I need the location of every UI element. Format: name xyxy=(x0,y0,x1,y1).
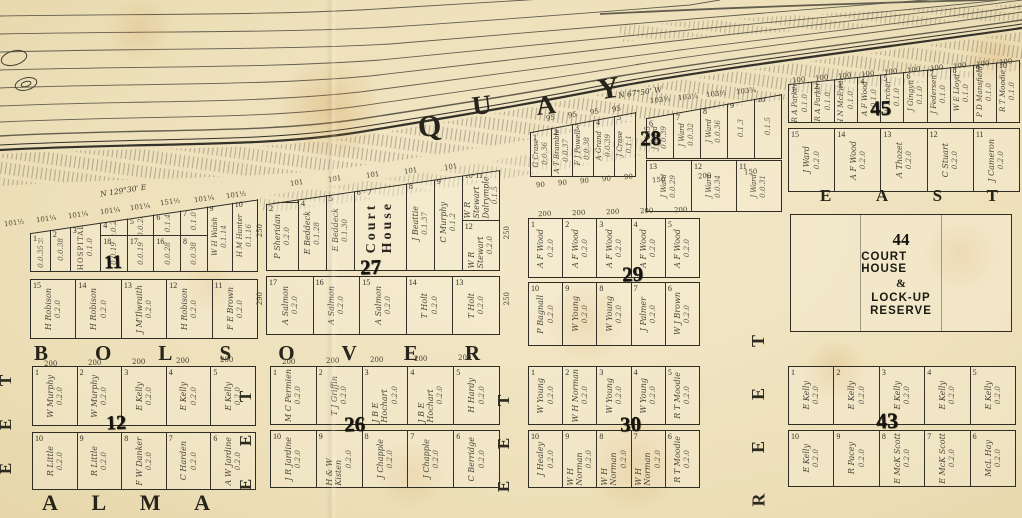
lot: 10·11W R Stewart Dalrymple0.1.512W R Ste… xyxy=(462,170,499,270)
lot-owner: P Sheridan xyxy=(273,214,282,259)
lot-owner: A F Wood xyxy=(673,229,682,268)
lot: 6McL Hay0.2.0 xyxy=(970,431,1015,486)
street-letter: E xyxy=(237,479,254,490)
lot: 6C Berridge0.2.0 xyxy=(453,431,499,487)
lot-owner: E Kelly xyxy=(893,381,902,410)
street-letter: T xyxy=(749,335,767,347)
lot: 2E Kelly0.2.0 xyxy=(833,367,878,424)
lot-area: 0.1.28 xyxy=(313,222,321,245)
lot-area: 0.0.39 xyxy=(660,126,668,149)
lot-owner: F J Powell xyxy=(574,130,582,165)
block-number: 27 xyxy=(360,255,382,281)
lot-number: 6 xyxy=(668,432,672,441)
lot-area: 0.2.0 xyxy=(100,452,108,470)
lot-owner: M C Permien xyxy=(284,369,293,422)
lot-number: 8 xyxy=(599,432,603,441)
lot-number: 13 xyxy=(124,281,132,290)
lot-area: 0.2.0 xyxy=(997,151,1005,169)
lot-area: 0.1.0 xyxy=(962,84,970,102)
street-label-vertical: TEE xyxy=(0,372,11,477)
lot-area: 0.2.0 xyxy=(384,296,392,314)
lot-owner: J Crase xyxy=(616,131,624,157)
lot-area: 0.1.0 xyxy=(916,86,924,104)
street-letter: T xyxy=(987,186,998,206)
lot-number: 4 xyxy=(103,221,107,230)
lot-number: 3 xyxy=(365,368,369,377)
lot: 14T Holt0.2.0 xyxy=(406,277,453,334)
lot-area: 0.2.0 xyxy=(615,386,623,404)
lot-owner: J Ward xyxy=(705,119,713,143)
dimension-label: 150 xyxy=(744,168,758,177)
lot-owner: A F Wood xyxy=(861,81,869,116)
street-letter: E xyxy=(749,388,767,400)
lot-owner: E Kelly xyxy=(224,382,233,411)
lot: 10J R Jardine0.2.0 xyxy=(271,431,316,487)
lot-number: 14 xyxy=(409,278,417,287)
street-letter: T xyxy=(237,391,254,402)
lot-area: 0.2.0 xyxy=(812,449,820,467)
lot-number: 11 xyxy=(215,281,223,290)
lot-owner: A F Wood xyxy=(571,229,580,268)
lot-area: 0.2.0 xyxy=(581,239,589,257)
lot-owner: C Stuart xyxy=(941,143,950,177)
lot-row: 13J Ward0.0.2912J Ward0.0.3411J Ward0.0.… xyxy=(646,160,782,212)
lot: 9R Pacey0.2.0 xyxy=(833,431,878,486)
block-number: 26 xyxy=(344,412,366,438)
lot-row: 10R Little0.2.09R Little0.2.08F W Danker… xyxy=(32,432,256,490)
lot: 12H Robison0.2.0 xyxy=(166,280,211,338)
lot-number: 1 xyxy=(791,368,795,377)
lot-area: 0.2.0 xyxy=(858,386,866,404)
lot-row: 1M C Permien0.2.02T J Griffin0.2.03J B E… xyxy=(270,366,500,425)
lot-owner: A Salmon xyxy=(374,286,383,325)
lot-area: 0.2.0 xyxy=(948,449,956,467)
lot-area: 0.1.0 xyxy=(190,212,198,230)
block-44-court-house-reserve: 44 COURT HOUSE & LOCK-UP RESERVE xyxy=(790,214,1012,332)
dimension-label: 95 xyxy=(589,107,599,116)
lot-area: 0.2.0 xyxy=(547,450,555,468)
lot: 11F E Brown0.2.0 xyxy=(212,280,257,338)
lot-owner: E Kelly xyxy=(847,381,856,410)
lot-number: 6 xyxy=(156,213,160,222)
lot-area: 0.2.0 xyxy=(478,386,486,404)
lot-area: 0.0.37 xyxy=(562,139,570,162)
lot-owner: E Kelly xyxy=(984,381,993,410)
lot-area: 0.1.1 xyxy=(625,135,633,153)
dimension-label: 200 xyxy=(176,357,189,365)
lot-number: 17 xyxy=(130,237,138,246)
reserve-side-panel xyxy=(791,215,860,331)
lot-area: 0.2.0 xyxy=(903,449,911,467)
dimension-label: 200 xyxy=(326,357,339,365)
dimension-label: 90 xyxy=(624,173,633,182)
lot-owner: R Little xyxy=(46,446,55,476)
lot-area: 0.1.5 xyxy=(491,186,499,204)
lot-area: 0.2.0 xyxy=(547,305,555,323)
lot-number: 11 xyxy=(976,130,984,139)
lot-number: 10 xyxy=(791,432,799,441)
lot-area: 0.2.0 xyxy=(547,386,555,404)
dimension-label: 200 xyxy=(132,358,145,366)
lot: 5J Crase0.1.1 xyxy=(614,112,635,176)
lot-number: 5 xyxy=(213,368,217,377)
dimension-label: 100 xyxy=(953,61,967,70)
lot-owner: E Kelly xyxy=(802,381,811,410)
lot-area: 0.0.38 xyxy=(57,238,65,261)
lot-row: 1W Young0.2.02W H Norman0.2.03W Young0.2… xyxy=(528,366,700,425)
lot-area: 0.1.0 xyxy=(939,85,947,103)
lot-owner: W E Lloyd xyxy=(953,74,961,111)
lot: 9W Young0.2.0 xyxy=(562,283,596,345)
lot: 1W Murphy0.2.0 xyxy=(33,367,77,425)
lot: 7E McK Scott0.2.0 xyxy=(924,431,969,486)
lot-owner: W Young xyxy=(605,378,614,414)
lot-number: 4 xyxy=(410,368,414,377)
lot-area: 0.2.0 xyxy=(581,305,589,323)
reserve-line: & xyxy=(896,276,906,291)
lot-area: 0.2.0 xyxy=(683,386,691,404)
lot-number: 10 xyxy=(273,432,281,441)
street-letter: T xyxy=(495,395,512,406)
lot-area: 0.2.0 xyxy=(812,386,820,404)
lot-area: 0.2.0 xyxy=(431,296,439,314)
lot-area: 0.2.0 xyxy=(994,386,1002,404)
lot-area: 0.2.0 xyxy=(190,300,198,318)
lot-number: 8 xyxy=(703,107,707,116)
lot: 90.1.3 xyxy=(727,94,754,158)
lot: 6W J Brown0.2.0 xyxy=(665,283,699,345)
lot-area: 0.2.0 xyxy=(478,450,486,468)
lot-area: 0.1.0 xyxy=(86,238,94,256)
lot-area: 0.1.3 xyxy=(737,119,745,137)
lot: 9W H Norman0.2.0 xyxy=(562,431,596,487)
lot-number: 14 xyxy=(78,281,86,290)
lot: 7J Palmer0.2.0 xyxy=(631,283,665,345)
lot-area: 0.2.0 xyxy=(294,386,302,404)
lot: 1M C Permien0.2.0 xyxy=(271,367,316,424)
lot-number: 6 xyxy=(213,434,217,443)
lot: 8W Young0.2.0 xyxy=(596,283,630,345)
lot-area: 0.0.34 xyxy=(714,175,722,198)
lot: 12C Stuart0.2.0 xyxy=(927,129,973,191)
lot: 13J Ward0.0.29 xyxy=(647,161,691,211)
dimension-label: 150 xyxy=(652,176,666,185)
lot-row: 15H Robison0.2.014H Robison0.2.013J M'Il… xyxy=(30,279,258,339)
lot-number: 17 xyxy=(269,278,277,287)
dimension-label: 250 xyxy=(503,292,511,305)
lot-area: 0.2.0 xyxy=(145,387,153,405)
lot-area: 0.2.0 xyxy=(649,305,657,323)
street-letter: E xyxy=(495,438,512,449)
lot-area: 0.2.0 xyxy=(994,449,1002,467)
lot: 14A F Wood0.2.0 xyxy=(834,129,880,191)
lot: 2P Sheridan0.2.0 xyxy=(267,202,298,270)
lot-area: 0.2.0 xyxy=(236,300,244,318)
lot-owner: H Robison xyxy=(180,288,189,330)
street-letter: E xyxy=(0,463,14,474)
lot-owner: J R Jardine xyxy=(284,437,293,481)
lot-area: 0.2.0 xyxy=(190,452,198,470)
dimension-label: 100 xyxy=(792,75,806,84)
lot-number: 1 xyxy=(273,368,277,377)
lot: 3E Kelly0.2.0 xyxy=(121,367,166,425)
lot-owner: H Robison xyxy=(44,288,53,330)
street-letter: Q xyxy=(416,109,443,145)
street-letter: L xyxy=(158,341,172,365)
lot-area: 0.2.0 xyxy=(432,450,440,468)
lot-number: 12 xyxy=(930,130,938,139)
lot: 12W R Stewart0.2.0 xyxy=(463,220,499,271)
dimension-label: 165 xyxy=(644,126,652,139)
dimension-label: 200 xyxy=(220,356,233,364)
block-number: 45 xyxy=(870,96,892,122)
lot-number: 6 xyxy=(456,432,460,441)
lot-owner: J Palmer xyxy=(639,297,648,331)
lot-number: 15 xyxy=(791,130,799,139)
lot-area: 0.2.0 xyxy=(477,296,485,314)
lot-owner: W H Norman xyxy=(571,369,580,422)
lot-owner: W Murphy xyxy=(46,375,55,418)
lot: 4J B E Hochart0.2.0 xyxy=(407,367,453,424)
lot-area: 0.2.0 xyxy=(190,387,198,405)
lot-number: 2 xyxy=(554,128,558,137)
lot-area: 0.1.14 xyxy=(220,225,228,248)
lot-owner: W Young xyxy=(571,296,580,332)
lot-owner: A Salmon xyxy=(327,286,336,325)
lot-area: 0.1.0 xyxy=(985,83,993,101)
dimension-label: 200 xyxy=(698,172,712,181)
lot: 6R T Moodie0.2.0 xyxy=(665,431,699,487)
lot-owner: W Young xyxy=(605,296,614,332)
lot-number: 1 xyxy=(33,234,37,243)
dimension-label: 200 xyxy=(282,358,295,366)
lot-number: 5 xyxy=(329,194,333,203)
lot-area: 0.2.0 xyxy=(547,239,555,257)
lot-area: 0.2.0 xyxy=(345,450,353,468)
dimension-label: 200 xyxy=(538,210,552,218)
dimension-label: 95 xyxy=(545,113,555,122)
lot-number: 7 xyxy=(927,432,931,441)
street-letter: E xyxy=(0,419,14,430)
lot-owner: J Cameron xyxy=(987,139,996,182)
lot-number: 1 xyxy=(791,85,795,94)
lot-owner: H & W Kisten xyxy=(325,433,343,486)
street-letter: A xyxy=(42,490,58,516)
lot-owner: HOSPITAL xyxy=(77,224,85,270)
lot-owner: C Berridge xyxy=(467,437,476,481)
lot-area: 0.2.0 xyxy=(486,236,494,254)
lot: 5R T Moodie0.2.0 xyxy=(665,367,699,424)
lot-number: 6 xyxy=(973,432,977,441)
lot-owner: A F Wood xyxy=(536,229,545,268)
lot-owner: W H Walsh xyxy=(211,217,219,256)
lot-area: 0.0.38 xyxy=(190,242,198,265)
lot: 9W H Walsh0.1.14 xyxy=(207,199,232,271)
lot-owner: Court House xyxy=(364,201,396,253)
lot-owner: H Hardy xyxy=(467,378,476,413)
lot-number: 3 xyxy=(73,226,77,235)
lot-area: 0.0.38 xyxy=(583,137,591,160)
lot-number: 5 xyxy=(668,220,672,229)
lot: 8W H Norman0.2.0 xyxy=(596,431,630,487)
lot: 8E McK Scott0.2.0 xyxy=(879,431,924,486)
lot-number: 4 xyxy=(927,368,931,377)
lot: 1A F Wood0.2.0 xyxy=(529,219,562,277)
dimension-label: 290 xyxy=(256,292,264,305)
dimension-label: 95 xyxy=(567,110,577,119)
street-letter: V xyxy=(342,341,357,365)
lot-area: 0.2.0 xyxy=(683,305,691,323)
dimension-label: 200 xyxy=(606,208,620,216)
lot-owner: R T Moodie xyxy=(999,70,1007,112)
lot-area: 0.2.0 xyxy=(100,300,108,318)
lot-owner: W J Brown xyxy=(673,292,682,335)
dimension-label: 200 xyxy=(44,360,57,368)
lot-number: 2 xyxy=(319,368,323,377)
lot-area: 0.2.0 xyxy=(951,151,959,169)
lot-owner: E Beddeck xyxy=(331,208,340,251)
lot-area: 0.2.0 xyxy=(436,386,444,404)
lot-row: 1A F Wood0.2.02A F Wood0.2.03A F Wood0.2… xyxy=(528,218,700,278)
lot: 3J B E Hochart0.2.0 xyxy=(362,367,408,424)
lot-owner: J B E Hochart xyxy=(417,369,435,423)
lot-area: 0.2.0 xyxy=(813,151,821,169)
lot-owner: R Pacey xyxy=(847,442,856,474)
lot-owner: C Harden xyxy=(179,441,188,480)
lot-area: 0.2.0 xyxy=(905,151,913,169)
lot: 2A F Wood0.2.0 xyxy=(562,219,596,277)
lot-area: 0.2.0 xyxy=(283,227,291,245)
lot: 100.1.5 xyxy=(754,94,781,158)
lot: 1W Young0.2.0 xyxy=(529,367,562,424)
lot-owner: J Chapple xyxy=(422,439,431,478)
lot-number: 9 xyxy=(565,432,569,441)
lot-area: 0.2.0 xyxy=(948,386,956,404)
street-letter: L xyxy=(91,490,106,516)
lot-area: 0.1.30 xyxy=(341,219,349,242)
lot-number: 5 xyxy=(668,368,672,377)
lot: 10E Kelly0.2.0 xyxy=(789,431,833,486)
dimension-label: 100 xyxy=(884,67,898,76)
lot-owner: J Chapple xyxy=(376,439,385,478)
lot-number: 1 xyxy=(35,368,39,377)
lot-owner: T J Griffin xyxy=(330,376,339,416)
lot: 4E Kelly0.2.0 xyxy=(166,367,211,425)
lot-number: 2 xyxy=(814,82,818,91)
dimension-label: 100 xyxy=(999,57,1013,66)
lot-owner: E McK Scott xyxy=(938,433,947,484)
lot-area: 0.2.0 xyxy=(858,449,866,467)
lot-area: 0.0.31 xyxy=(759,175,767,198)
lot-area: 0.2.0 xyxy=(585,450,593,468)
lot-area: 0.2.0 xyxy=(145,300,153,318)
lot-owner: McL Hay xyxy=(984,440,993,477)
lot: 15J Ward0.2.0 xyxy=(789,129,834,191)
lot-row: 10J R Jardine0.2.09H & W Kisten0.2.08J C… xyxy=(270,430,500,488)
lot-area: 0.1.0 xyxy=(893,88,901,106)
lot-row: 17A Salmon0.2.016A Salmon0.2.015A Salmon… xyxy=(266,276,500,335)
lot-owner: H Robison xyxy=(89,288,98,330)
lot-number: 2 xyxy=(565,368,569,377)
lot-area: 0.2.0 xyxy=(294,450,302,468)
lot: 10R Little0.2.0 xyxy=(33,433,77,489)
dimension-label: 200 xyxy=(674,206,688,214)
dimension-label: 100 xyxy=(907,65,921,74)
lot-area: 0.0.39 xyxy=(604,134,612,157)
lot: 7J Chapple0.2.0 xyxy=(407,431,453,487)
lot-owner: E Beddeck xyxy=(303,211,312,254)
lot-number: 16 xyxy=(316,278,324,287)
lot-number: 12 xyxy=(465,222,473,231)
lot-owner: P Bagnall xyxy=(536,295,545,334)
lot-area: 0.0.36 xyxy=(714,120,722,143)
block-number: 12 xyxy=(106,412,127,436)
lot-owner: J Federsen xyxy=(930,75,938,114)
lot-owner: G Crase xyxy=(532,139,540,167)
lot-number: 7 xyxy=(169,434,173,443)
lot-owner: J Healey xyxy=(536,442,545,476)
dimension-label: 200 xyxy=(414,355,427,363)
lot-number: 9 xyxy=(565,284,569,293)
reserve-line: COURT HOUSE xyxy=(861,251,941,275)
lot-number: 3 xyxy=(837,80,841,89)
lot: 4A Grand0.0.39 xyxy=(593,112,614,176)
dimension-label: 250 xyxy=(256,224,264,237)
lot-number: 7 xyxy=(410,432,414,441)
lot-number: 1 xyxy=(531,220,535,229)
lot-area: 0.2.0 xyxy=(615,239,623,257)
lot-row: 1E Kelly0.2.02E Kelly0.2.03E Kelly0.2.04… xyxy=(788,366,1016,425)
lot: 5H Hardy0.2.0 xyxy=(453,367,499,424)
lot-owner: J Gingyn xyxy=(907,80,915,111)
reserve-side-panel xyxy=(941,215,1011,331)
lot-row: 15J Ward0.2.014A F Wood0.2.013A Thozet0.… xyxy=(788,128,1020,192)
dimension-label: 100 xyxy=(861,69,875,78)
lot-owner: R T Moodie xyxy=(673,436,682,483)
street-label-vertical: TEE xyxy=(498,392,509,495)
lot: 10H M Hunter0.1.16 xyxy=(232,199,257,271)
block-number: 44 xyxy=(893,230,910,250)
lot: 14H Robison0.2.0 xyxy=(75,280,120,338)
street-letter: A xyxy=(876,186,888,206)
lot-area: 0.1.0 xyxy=(1008,82,1016,100)
lot-number: 2 xyxy=(80,368,84,377)
lot: 13A Thozet0.2.0 xyxy=(880,129,926,191)
lot-area: 0.1.16 xyxy=(245,224,253,247)
lot: 11J Cameron0.2.0 xyxy=(973,129,1019,191)
lot-number: 6 xyxy=(668,284,672,293)
lot: 5E Kelly0.2.0 xyxy=(970,367,1015,424)
block-number: 11 xyxy=(104,252,123,275)
lot-owner: E Kelly xyxy=(179,382,188,411)
lot-area: 0.2.0 xyxy=(391,386,399,404)
lot-area: 0.1.4 xyxy=(164,214,172,232)
lot-number: 8 xyxy=(124,434,128,443)
lot: 10R T Moodie0.1.0 xyxy=(996,60,1019,122)
lot-owner: J B E Hochart xyxy=(371,369,389,423)
lot: 15A Salmon0.2.0 xyxy=(359,277,406,334)
lot: 7W H Norman0.2.0 xyxy=(631,431,665,487)
lot-owner: W Murphy xyxy=(90,375,99,418)
lot-number: 15 xyxy=(33,281,41,290)
lot-area: 0.2.0 xyxy=(859,151,867,169)
lot-area: 0.0.19 xyxy=(137,242,145,265)
lot: 9C Murphy0.1.2 xyxy=(434,170,462,270)
dimension-label: 90 xyxy=(558,179,567,188)
dimension-label: 90 xyxy=(602,175,611,184)
block-number: 29 xyxy=(622,262,644,288)
lot: 15H Robison0.2.0 xyxy=(31,280,75,338)
